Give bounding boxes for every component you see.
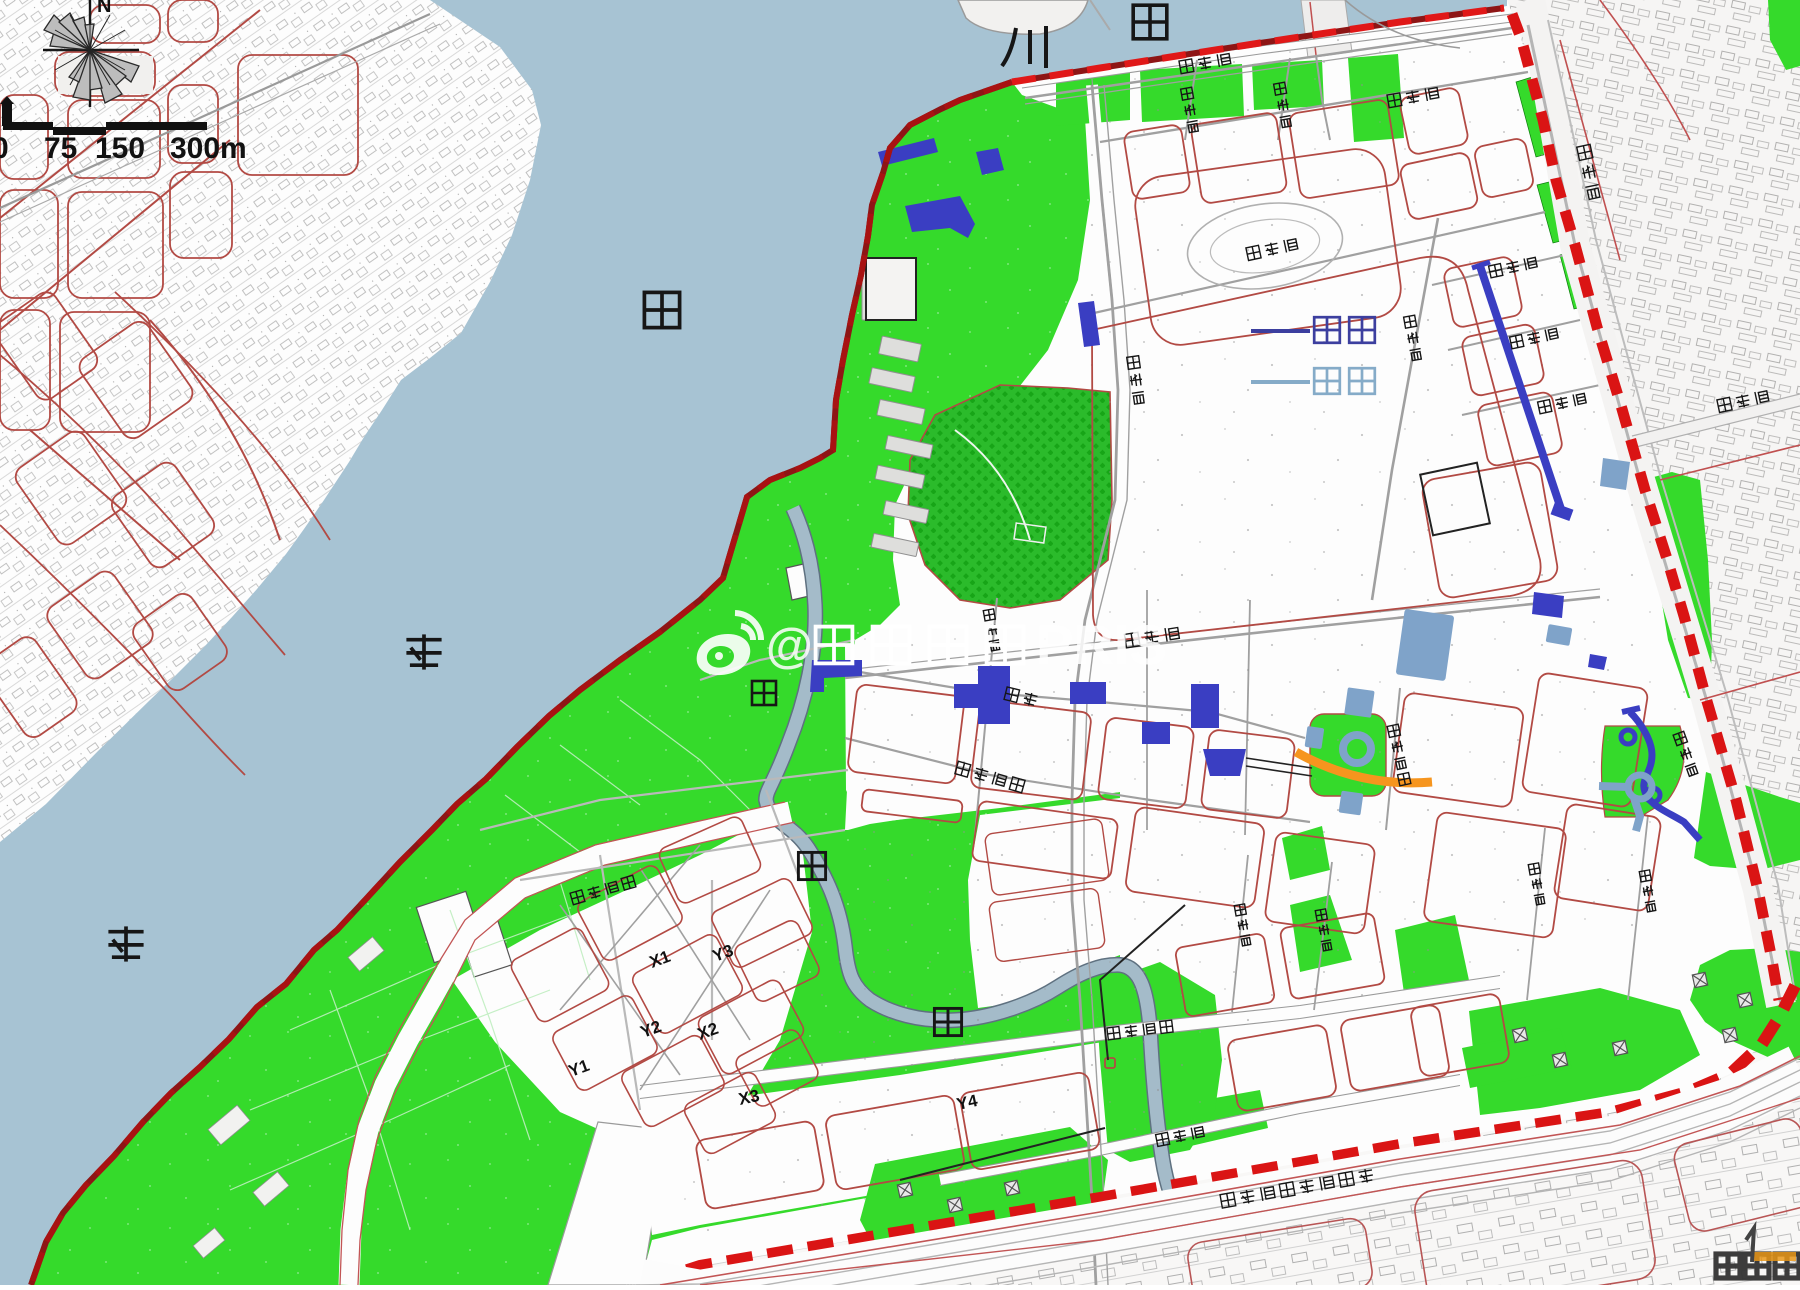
svg-text:@: @ bbox=[766, 620, 813, 673]
svg-text:N: N bbox=[97, 0, 111, 17]
svg-text:300m: 300m bbox=[170, 132, 247, 165]
svg-text:0: 0 bbox=[0, 132, 9, 165]
svg-text:75: 75 bbox=[44, 132, 77, 165]
svg-text:PRIS: PRIS bbox=[1036, 613, 1167, 676]
svg-text:150: 150 bbox=[95, 132, 145, 165]
